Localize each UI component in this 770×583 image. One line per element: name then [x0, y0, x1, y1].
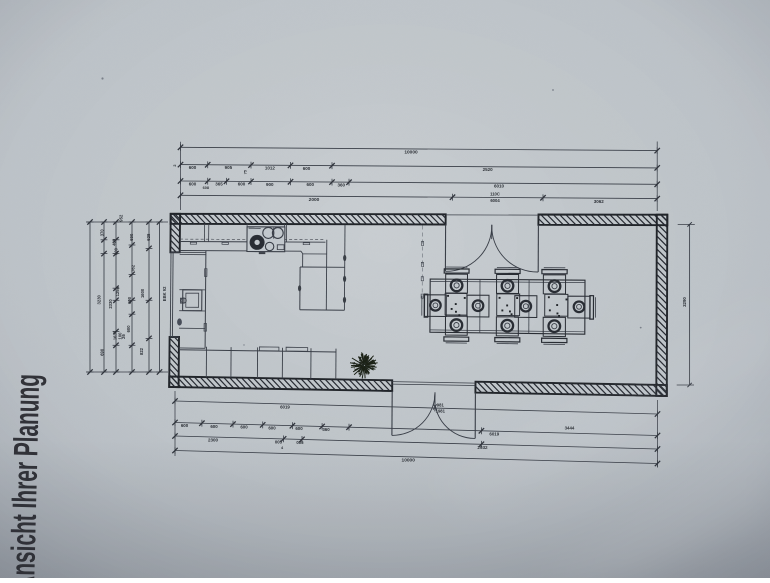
svg-text:3062: 3062: [594, 199, 605, 204]
svg-text:600: 600: [268, 425, 276, 430]
svg-text:600: 600: [240, 425, 248, 430]
svg-text:628: 628: [146, 233, 151, 241]
svg-text:2000: 2000: [309, 197, 320, 203]
svg-text:EBK 92: EBK 92: [162, 286, 167, 301]
svg-text:600: 600: [127, 296, 132, 304]
svg-text:1981: 1981: [436, 408, 446, 413]
svg-text:600: 600: [181, 423, 189, 428]
svg-text:2520: 2520: [483, 167, 494, 172]
svg-text:6019: 6019: [280, 405, 290, 410]
svg-text:600: 600: [126, 325, 131, 333]
svg-text:600: 600: [113, 247, 118, 255]
svg-text:900: 900: [266, 182, 274, 187]
svg-text:2300: 2300: [208, 438, 219, 443]
svg-text:75: 75: [244, 170, 248, 174]
svg-text:600: 600: [210, 424, 218, 429]
svg-text:1012: 1012: [265, 166, 276, 171]
svg-text:2032: 2032: [477, 445, 488, 450]
svg-text:600: 600: [189, 181, 197, 186]
svg-text:981: 981: [437, 402, 445, 407]
svg-text:762: 762: [131, 264, 136, 272]
svg-text:360: 360: [338, 182, 346, 187]
svg-text:2: 2: [173, 165, 177, 167]
svg-text:600: 600: [238, 182, 246, 187]
svg-text:1600: 1600: [140, 288, 145, 298]
svg-text:110C: 110C: [490, 191, 500, 196]
svg-text:10000: 10000: [404, 150, 418, 156]
svg-text:6004: 6004: [490, 198, 500, 203]
svg-text:952: 952: [118, 214, 123, 222]
svg-text:360: 360: [322, 427, 330, 432]
svg-text:690: 690: [129, 233, 134, 241]
svg-text:3230: 3230: [96, 294, 101, 304]
svg-text:400: 400: [111, 238, 116, 246]
svg-text:1294: 1294: [115, 286, 120, 296]
svg-text:26: 26: [121, 334, 126, 339]
svg-text:3290: 3290: [682, 297, 687, 307]
svg-text:600: 600: [303, 166, 311, 171]
svg-text:690: 690: [99, 348, 104, 356]
svg-text:005: 005: [275, 439, 283, 444]
svg-text:2330: 2330: [108, 299, 113, 309]
svg-text:608: 608: [203, 186, 209, 190]
svg-text:365: 365: [215, 182, 223, 187]
svg-text:905: 905: [225, 165, 233, 170]
svg-text:600: 600: [307, 182, 315, 187]
svg-text:6010: 6010: [494, 184, 505, 189]
svg-text:370: 370: [100, 229, 105, 237]
svg-text:1635: 1635: [113, 330, 118, 340]
svg-text:600: 600: [295, 426, 303, 431]
svg-text:005: 005: [296, 440, 304, 445]
svg-text:822: 822: [139, 347, 144, 355]
svg-text:600: 600: [189, 165, 197, 170]
svg-text:Ansicht Ihrer Planung: Ansicht Ihrer Planung: [3, 373, 47, 578]
svg-text:10000: 10000: [402, 458, 416, 464]
svg-text:6019: 6019: [489, 432, 499, 437]
